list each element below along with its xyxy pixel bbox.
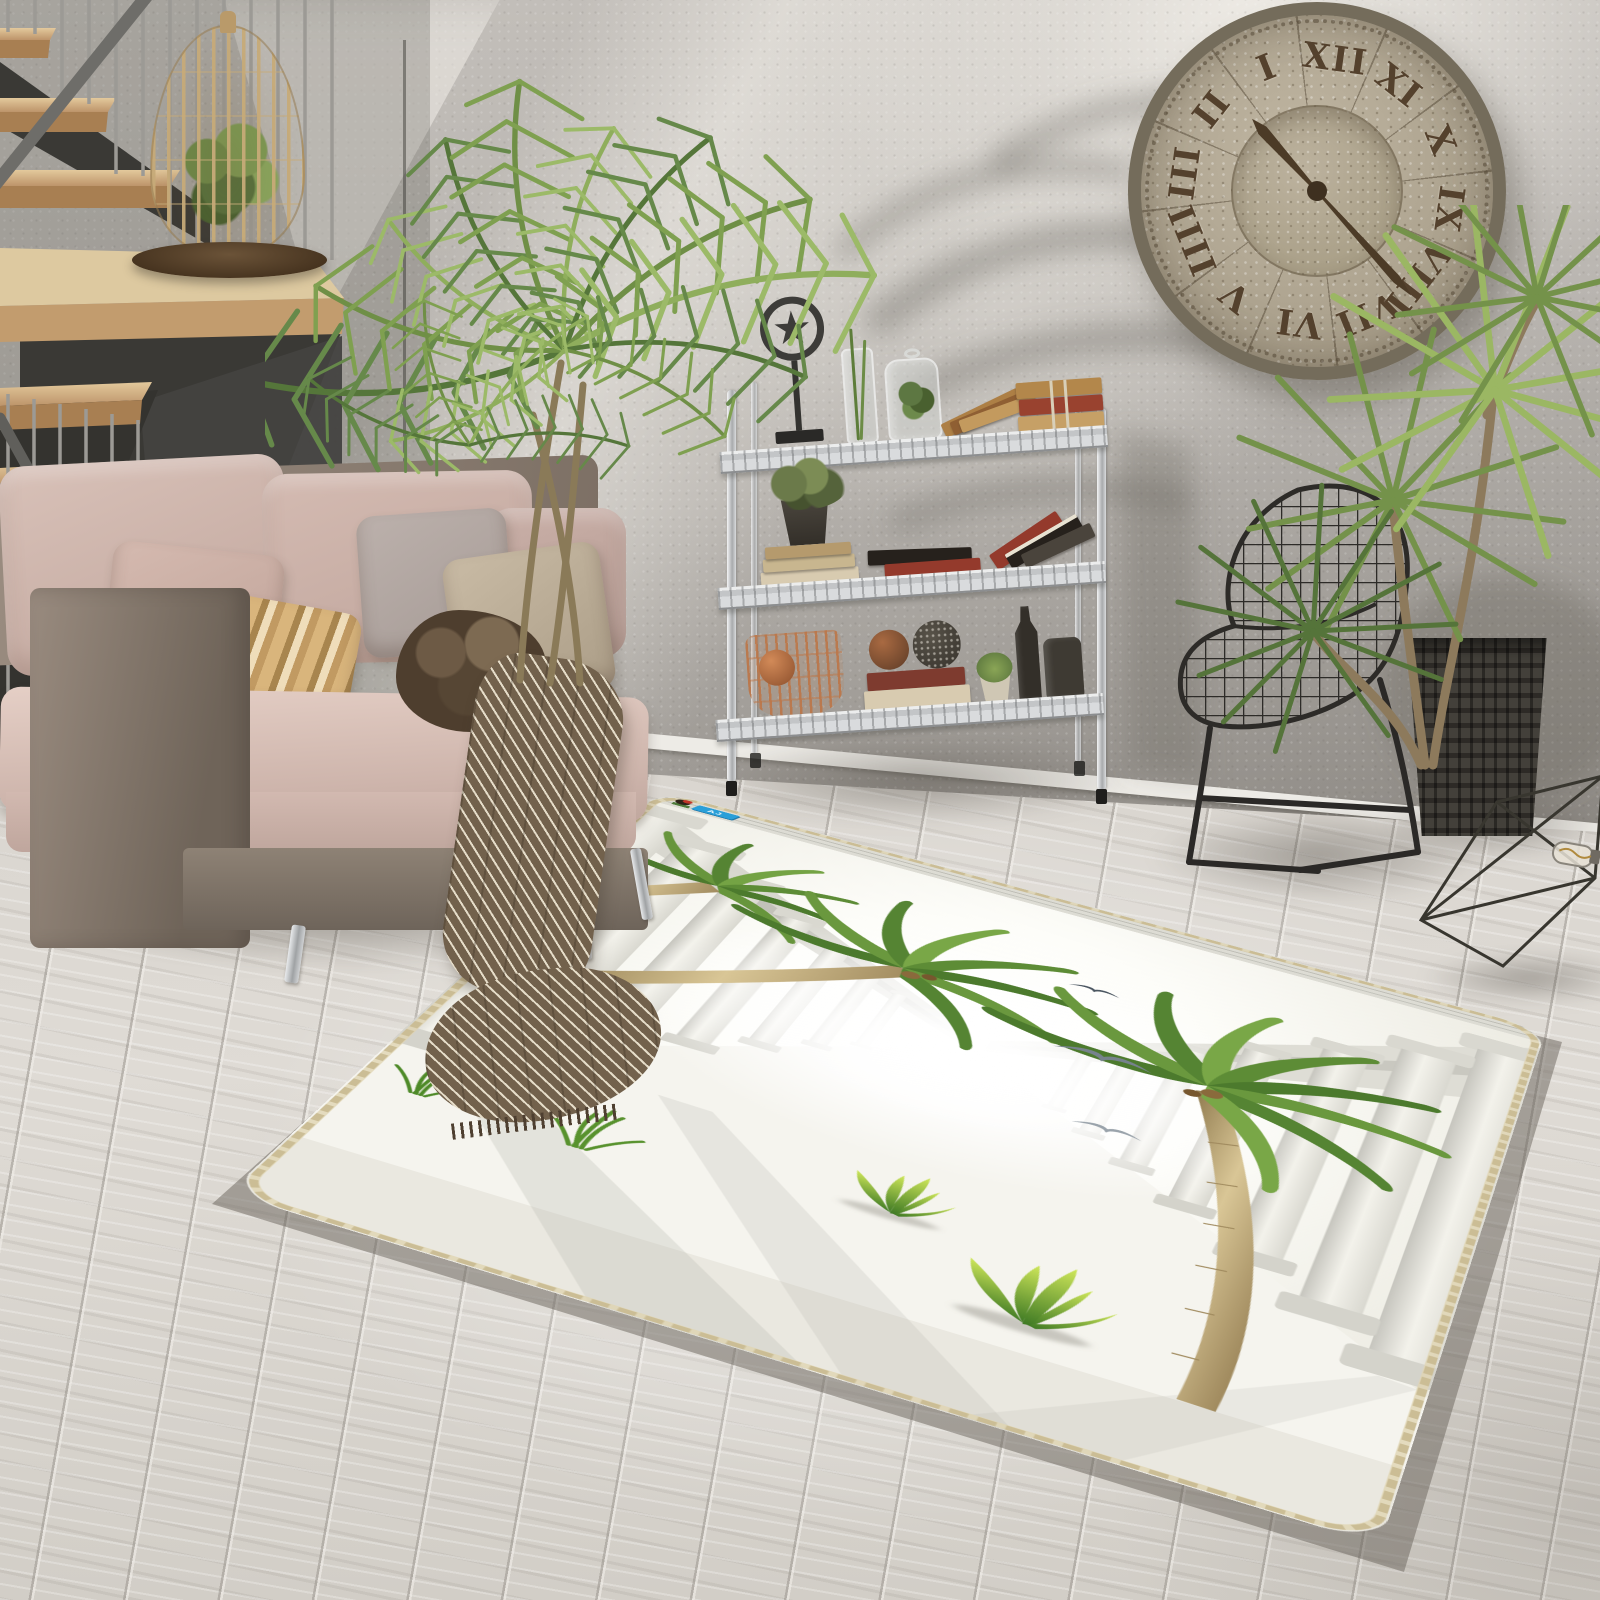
tied-book-bundle [1015,375,1104,433]
leaning-books-red-black [993,476,1095,570]
living-room-product-photo: XII I II III IIII V VI VII VIII IX X XI [0,0,1600,1600]
clock-hub [1307,181,1327,201]
clock-numeral: III [1160,135,1210,210]
geometric-wire-decor [1405,758,1600,1008]
sofa-leg [284,924,306,983]
kentia-palm [265,15,965,705]
glass-bottle-short [1043,636,1085,699]
logo-text: AJ [706,809,724,816]
small-succulent [973,649,1017,704]
kentia-fronds [265,79,881,490]
filament-bulb [1551,841,1600,869]
throw-floor-puddle [416,956,671,1134]
shelf-post [1097,408,1106,790]
